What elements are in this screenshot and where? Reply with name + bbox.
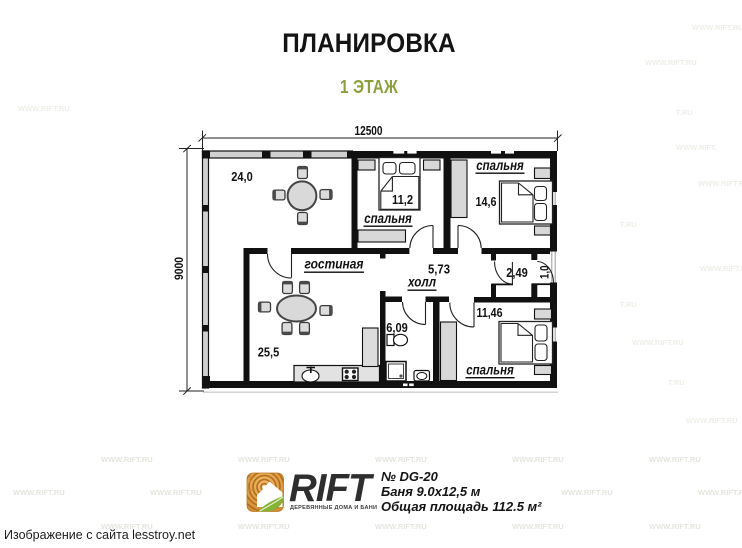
svg-text:1,0: 1,0 [538,265,552,279]
svg-text:спальня: спальня [476,158,524,173]
svg-text:спальня: спальня [466,363,514,378]
svg-text:25,5: 25,5 [258,346,280,360]
svg-text:11,2: 11,2 [392,193,413,207]
svg-text:гостиная: гостиная [305,257,364,272]
svg-text:спальня: спальня [364,211,412,226]
svg-text:12500: 12500 [355,123,383,138]
svg-text:холл: холл [407,275,436,290]
svg-text:14,6: 14,6 [476,195,497,209]
svg-text:6,09: 6,09 [386,321,408,335]
svg-text:24,0: 24,0 [231,170,253,184]
svg-text:2,49: 2,49 [506,266,528,280]
svg-text:9000: 9000 [172,257,186,280]
svg-text:11,46: 11,46 [477,306,503,320]
